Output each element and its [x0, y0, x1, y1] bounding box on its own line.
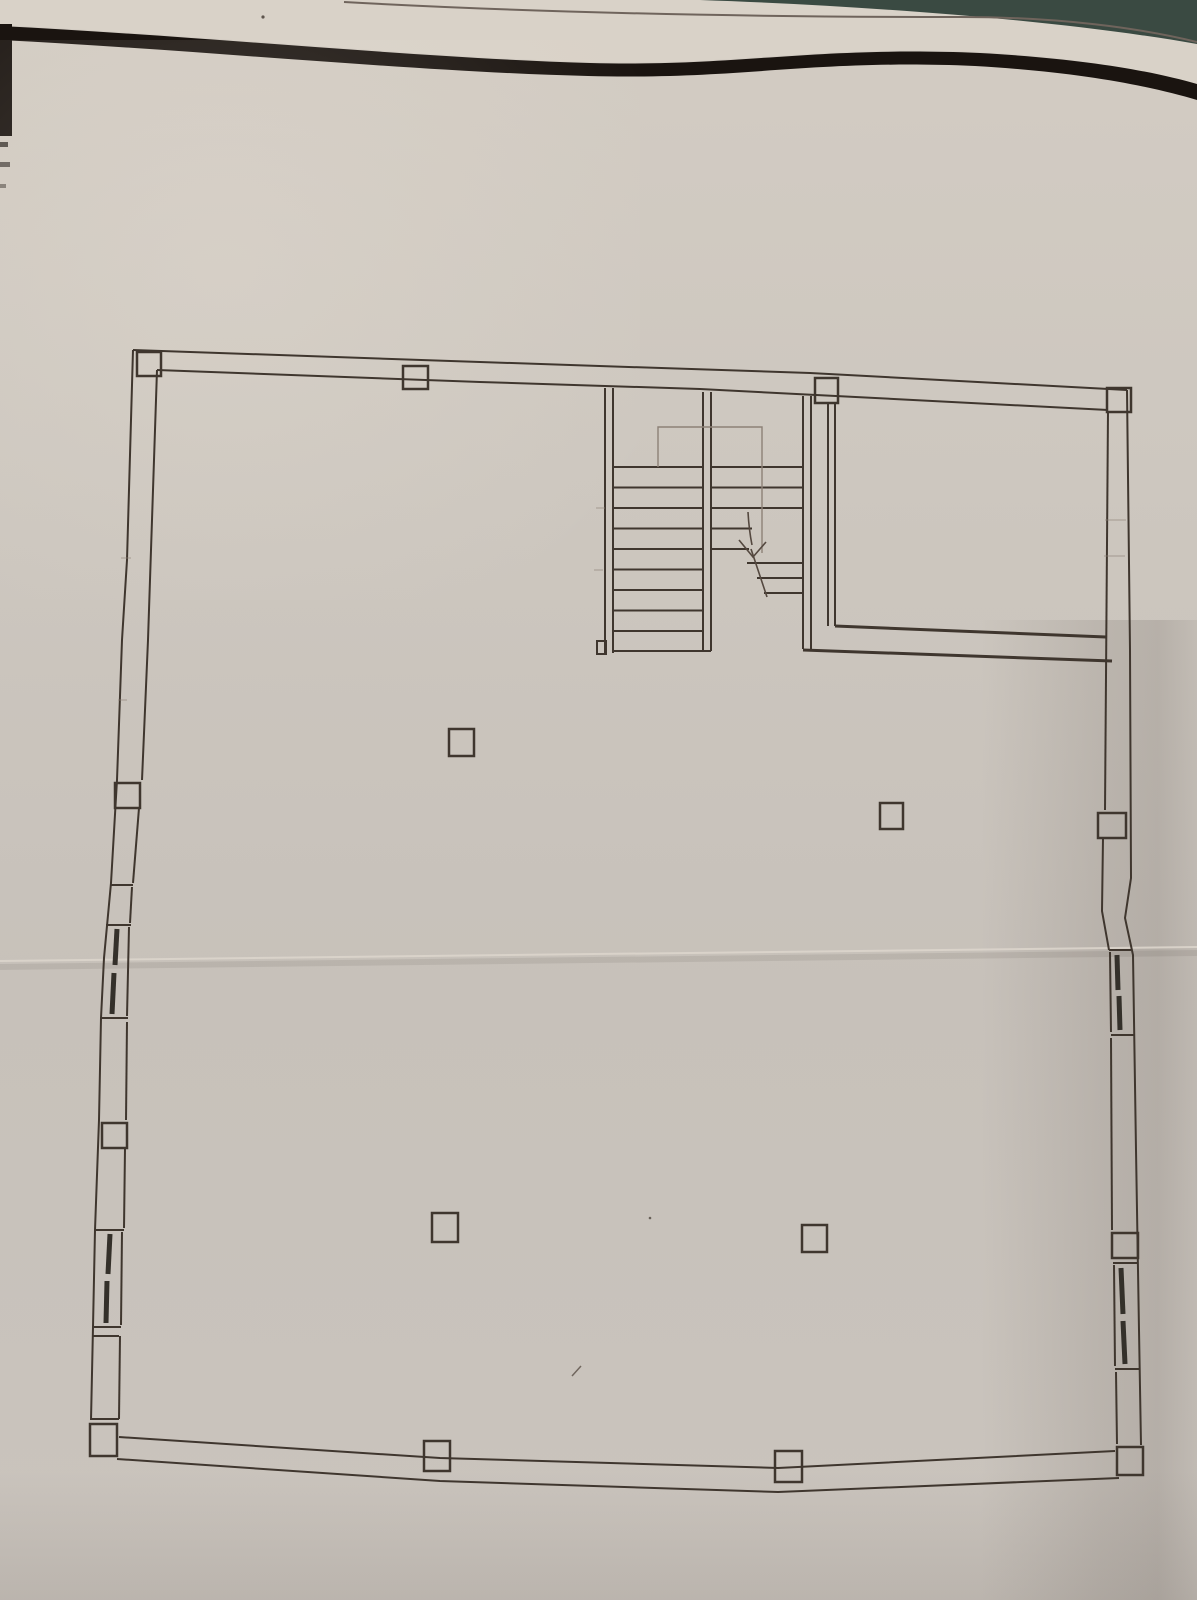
left-wall-inner-line [124, 1148, 125, 1228]
shadow-bottom [0, 1470, 1197, 1600]
window-glazing [112, 973, 114, 1014]
dust-speck [649, 1217, 652, 1220]
window-inner-line [121, 1232, 122, 1325]
left-wall-inner-line [119, 1336, 120, 1419]
window-glazing [115, 929, 117, 965]
window-inner-line [1110, 952, 1111, 1032]
window-glazing [106, 1281, 107, 1323]
page-artifacts [0, 0, 1197, 1600]
highlight-top-left [0, 40, 640, 600]
left-wall-inner-line [126, 1022, 127, 1120]
floor-plan-svg [0, 0, 1197, 1600]
window-inner-line [1114, 1265, 1115, 1366]
right-wall-inner-line [1116, 1372, 1117, 1444]
window-glazing [1123, 1321, 1125, 1364]
window-glazing [1117, 955, 1118, 990]
right-wall-inner-line [1111, 1038, 1112, 1230]
window-glazing [1119, 996, 1120, 1030]
window-glazing [1121, 1268, 1123, 1314]
dust-speck [261, 15, 264, 18]
scanned-page [0, 0, 1197, 1600]
window-glazing [108, 1234, 110, 1274]
